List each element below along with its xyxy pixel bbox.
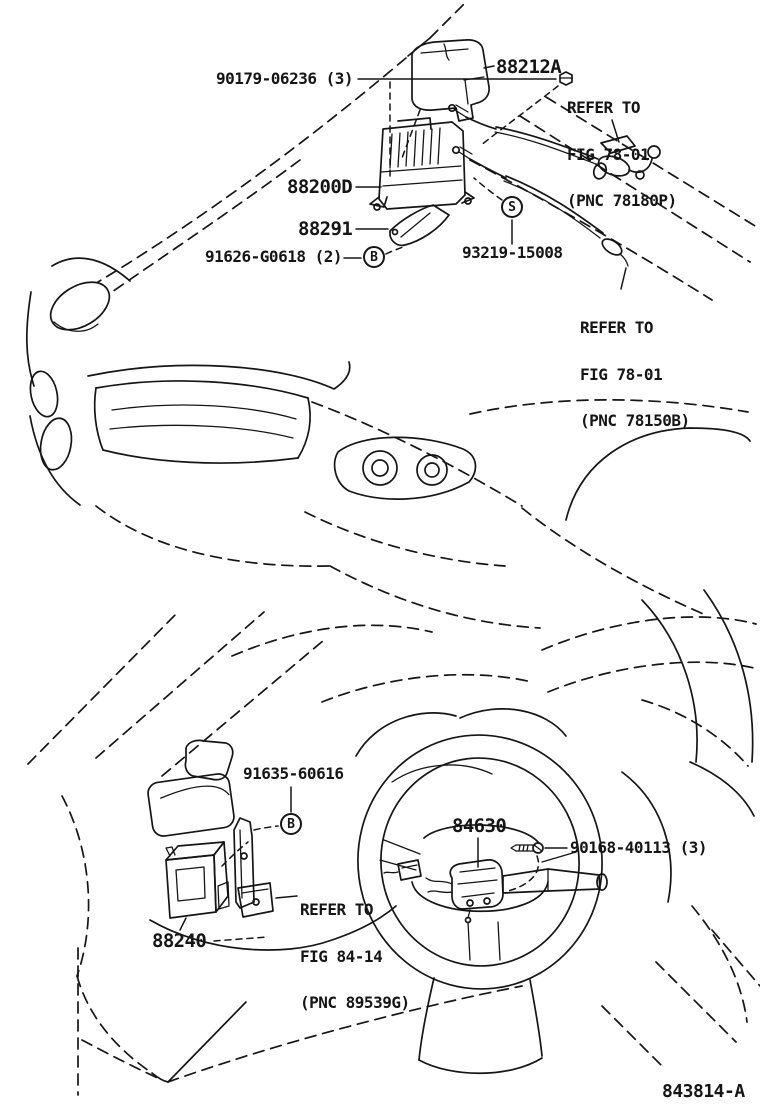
reference-line: FIG 78-01 [580, 367, 690, 383]
fastener-marker-b-upper: B [363, 246, 385, 268]
reference-line: (PNC 78180P) [567, 193, 677, 209]
part-number-module: 88240 [152, 931, 206, 951]
part-number-cover: 88212A [496, 57, 561, 77]
part-number-nut: 90179-06236 (3) [216, 71, 353, 87]
fastener-marker-s-clip: S [501, 196, 523, 218]
part-number-bolt-upper: 91626-G0618 (2) [205, 249, 342, 265]
reference-throttle-cable: REFER TO FIG 78-01 (PNC 78180P) [567, 69, 677, 224]
reference-line: (PNC 89539G) [300, 995, 410, 1011]
reference-spiral-cable: REFER TO FIG 84-14 (PNC 89539G) [300, 871, 410, 1026]
part-number-actuator: 88200D [287, 177, 352, 197]
reference-line: (PNC 78150B) [580, 413, 690, 429]
part-number-screw: 90168-40113 (3) [570, 840, 707, 856]
reference-line: FIG 78-01 [567, 147, 677, 163]
parts-diagram-page: 90179-06236 (3) 88212A 88200D 88291 9162… [0, 0, 760, 1112]
reference-line: REFER TO [300, 902, 410, 918]
reference-line: REFER TO [580, 320, 690, 336]
screw-icon [508, 843, 567, 891]
reference-line: FIG 84-14 [300, 949, 410, 965]
reference-line: REFER TO [567, 100, 677, 116]
part-number-clip: 93219-15008 [462, 245, 562, 261]
part-number-bracket: 88291 [298, 219, 352, 239]
figure-number: 843814-A [662, 1084, 745, 1100]
fastener-marker-b-lower: B [280, 813, 302, 835]
part-number-bolt-lower: 91635-60616 [243, 766, 343, 782]
reference-accel-cable: REFER TO FIG 78-01 (PNC 78150B) [580, 289, 690, 444]
part-number-switch: 84630 [452, 816, 506, 836]
